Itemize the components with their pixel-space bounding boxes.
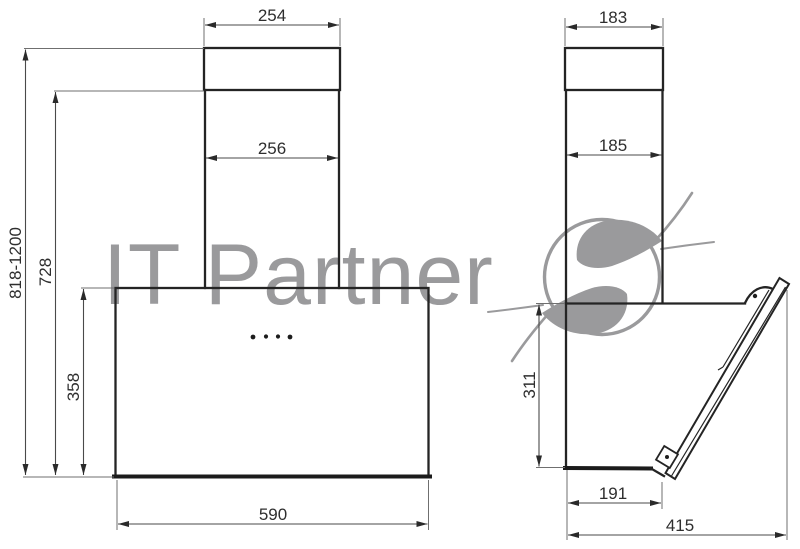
side-view: 183 185 311 191 415 bbox=[520, 8, 789, 540]
s-swoosh-logo-icon bbox=[488, 193, 714, 361]
logo-tail-lower-long bbox=[512, 313, 549, 361]
side-body-bottom-step bbox=[651, 469, 664, 477]
side-body-bottom-edge bbox=[565, 468, 651, 469]
control-buttons-dots bbox=[251, 334, 293, 339]
side-glass-panel bbox=[666, 278, 790, 479]
dim-label-818-1200: 818-1200 bbox=[6, 227, 25, 299]
dim-label-590: 590 bbox=[259, 505, 287, 524]
logo-tail-lower-short bbox=[488, 305, 543, 312]
dim-label-256: 256 bbox=[258, 139, 286, 158]
technical-drawing-page: IT Partner 254 bbox=[0, 0, 800, 549]
dim-side-body-height: 311 bbox=[520, 304, 565, 468]
dim-front-body-width: 590 bbox=[117, 480, 429, 530]
control-dot bbox=[251, 335, 256, 340]
logo-tail-upper-short bbox=[661, 242, 714, 249]
control-dot bbox=[276, 334, 280, 338]
dim-front-top-duct-width: 254 bbox=[204, 6, 340, 46]
hinge-pivot-dot bbox=[753, 294, 757, 298]
glass-panel-notch bbox=[718, 367, 723, 370]
dim-label-728: 728 bbox=[36, 258, 55, 286]
dim-label-311: 311 bbox=[520, 371, 539, 398]
dim-label-183: 183 bbox=[599, 8, 627, 27]
dim-label-358: 358 bbox=[64, 373, 83, 401]
dim-label-254: 254 bbox=[258, 6, 286, 25]
dim-label-415: 415 bbox=[666, 516, 694, 535]
logo-upper-swoosh bbox=[577, 220, 662, 268]
dim-side-duct-depth: 185 bbox=[567, 136, 662, 155]
dim-label-185: 185 bbox=[599, 136, 627, 155]
watermark: IT Partner bbox=[103, 193, 714, 361]
dim-side-bottom-depth: 191 bbox=[568, 482, 662, 509]
dimension-drawing: IT Partner 254 bbox=[0, 0, 800, 549]
dim-label-191: 191 bbox=[599, 484, 627, 503]
hinge-dot bbox=[665, 455, 669, 459]
watermark-brand-text: IT Partner bbox=[103, 227, 494, 323]
glass-panel-inner-line bbox=[672, 287, 786, 476]
dim-side-top-duct-depth: 183 bbox=[565, 8, 663, 46]
side-chimney-top-section bbox=[565, 48, 663, 90]
control-dot bbox=[288, 335, 293, 340]
dim-front-duct-width: 256 bbox=[206, 139, 338, 158]
control-dot bbox=[264, 334, 268, 338]
front-chimney-top-section bbox=[204, 48, 340, 90]
logo-tail-upper-long bbox=[654, 193, 692, 242]
logo-lower-swoosh bbox=[542, 286, 627, 334]
